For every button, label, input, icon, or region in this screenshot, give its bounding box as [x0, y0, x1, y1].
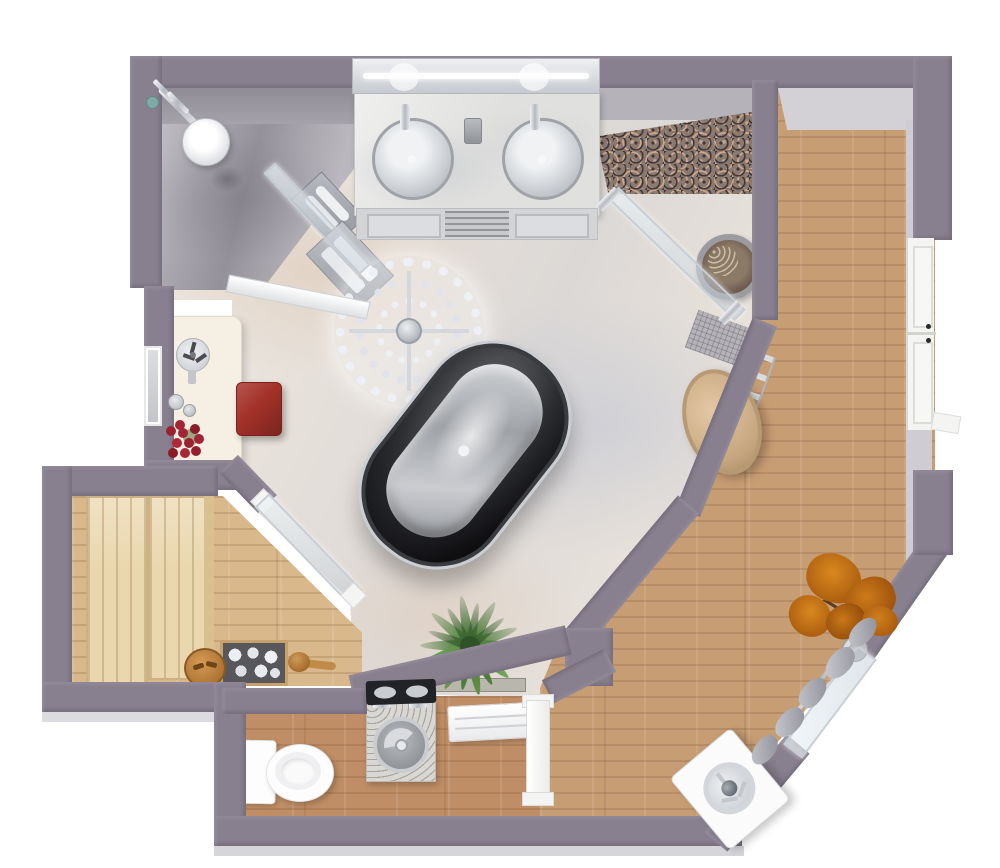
wall-right-upper	[913, 56, 952, 240]
radiator-line	[455, 724, 529, 730]
table-fan	[176, 338, 210, 372]
laundry-sink-unit	[366, 700, 436, 782]
cabinet-panel	[367, 214, 441, 238]
faucet-left	[400, 104, 410, 130]
shelf-dish	[406, 685, 428, 698]
floorplan-scene	[0, 0, 1000, 868]
rose-bouquet	[166, 426, 176, 436]
tap-cross	[409, 703, 427, 708]
wc-door-frame-bottom	[522, 792, 554, 806]
skirting-sauna	[42, 712, 228, 722]
fan-blade	[195, 353, 207, 363]
wall-granite-corridor-partition	[752, 80, 778, 320]
wall-sauna-left	[42, 466, 72, 712]
granite-wall-face	[596, 88, 752, 120]
wall-right-lower	[913, 470, 953, 555]
floor-drain	[210, 166, 244, 192]
door-gap	[908, 332, 936, 335]
perfume-bottle	[168, 394, 184, 410]
vanity-cabinet	[356, 208, 598, 240]
rain-shower-head	[182, 118, 230, 166]
sink-left	[372, 118, 454, 200]
washer-spoke	[722, 796, 738, 803]
radiator-line	[455, 714, 529, 720]
vanity-accessory	[464, 118, 482, 144]
drum-center	[395, 739, 408, 752]
bathtub-highlight	[415, 375, 527, 496]
mirror-glass	[148, 350, 158, 422]
fan-stand	[188, 370, 196, 384]
wall-sauna-wc-top	[222, 688, 367, 714]
mirror-reflection	[389, 63, 419, 91]
shelf-dish	[374, 686, 396, 699]
sauna-ladle-cup	[288, 652, 310, 672]
wall-left-upper	[130, 56, 162, 288]
red-ottoman	[236, 382, 282, 436]
wc-door	[526, 700, 550, 798]
fan-hub	[190, 352, 196, 358]
leaning-mirror	[144, 346, 162, 426]
skirting-bottom	[214, 846, 744, 856]
mirror-reflection	[519, 63, 549, 91]
vanity-mirror	[352, 58, 600, 94]
shower-valve-teal	[146, 96, 159, 109]
wall-bottom	[214, 816, 742, 846]
sink-drain-dot	[407, 155, 416, 164]
closet-door-panel-upper	[913, 246, 933, 328]
toilet-seat	[275, 752, 321, 790]
laundry-drum	[373, 717, 429, 773]
cabinet-panel	[515, 214, 589, 238]
perfume-bottle	[183, 404, 196, 417]
closet-door-panel-lower	[913, 342, 933, 424]
sink-right	[502, 118, 584, 200]
sink-drain-dot	[537, 155, 546, 164]
sauna-bench-upper	[86, 496, 148, 684]
toilet	[266, 744, 334, 802]
bowl-slot	[192, 662, 204, 670]
planter-soil-speckle	[708, 246, 738, 276]
closet-door-sill	[931, 412, 962, 435]
washer-spoke	[737, 781, 746, 797]
wall-sauna-bottom	[42, 682, 222, 712]
door-handle	[926, 324, 931, 329]
laundry-shelf	[366, 679, 437, 705]
bowl-slot	[206, 661, 218, 669]
faucet-right	[530, 104, 540, 130]
closet-double-doors	[906, 238, 934, 430]
cabinet-vent	[445, 211, 509, 237]
chandelier-hub	[396, 318, 422, 344]
sauna-stones	[220, 640, 288, 686]
door-handle	[926, 338, 931, 343]
